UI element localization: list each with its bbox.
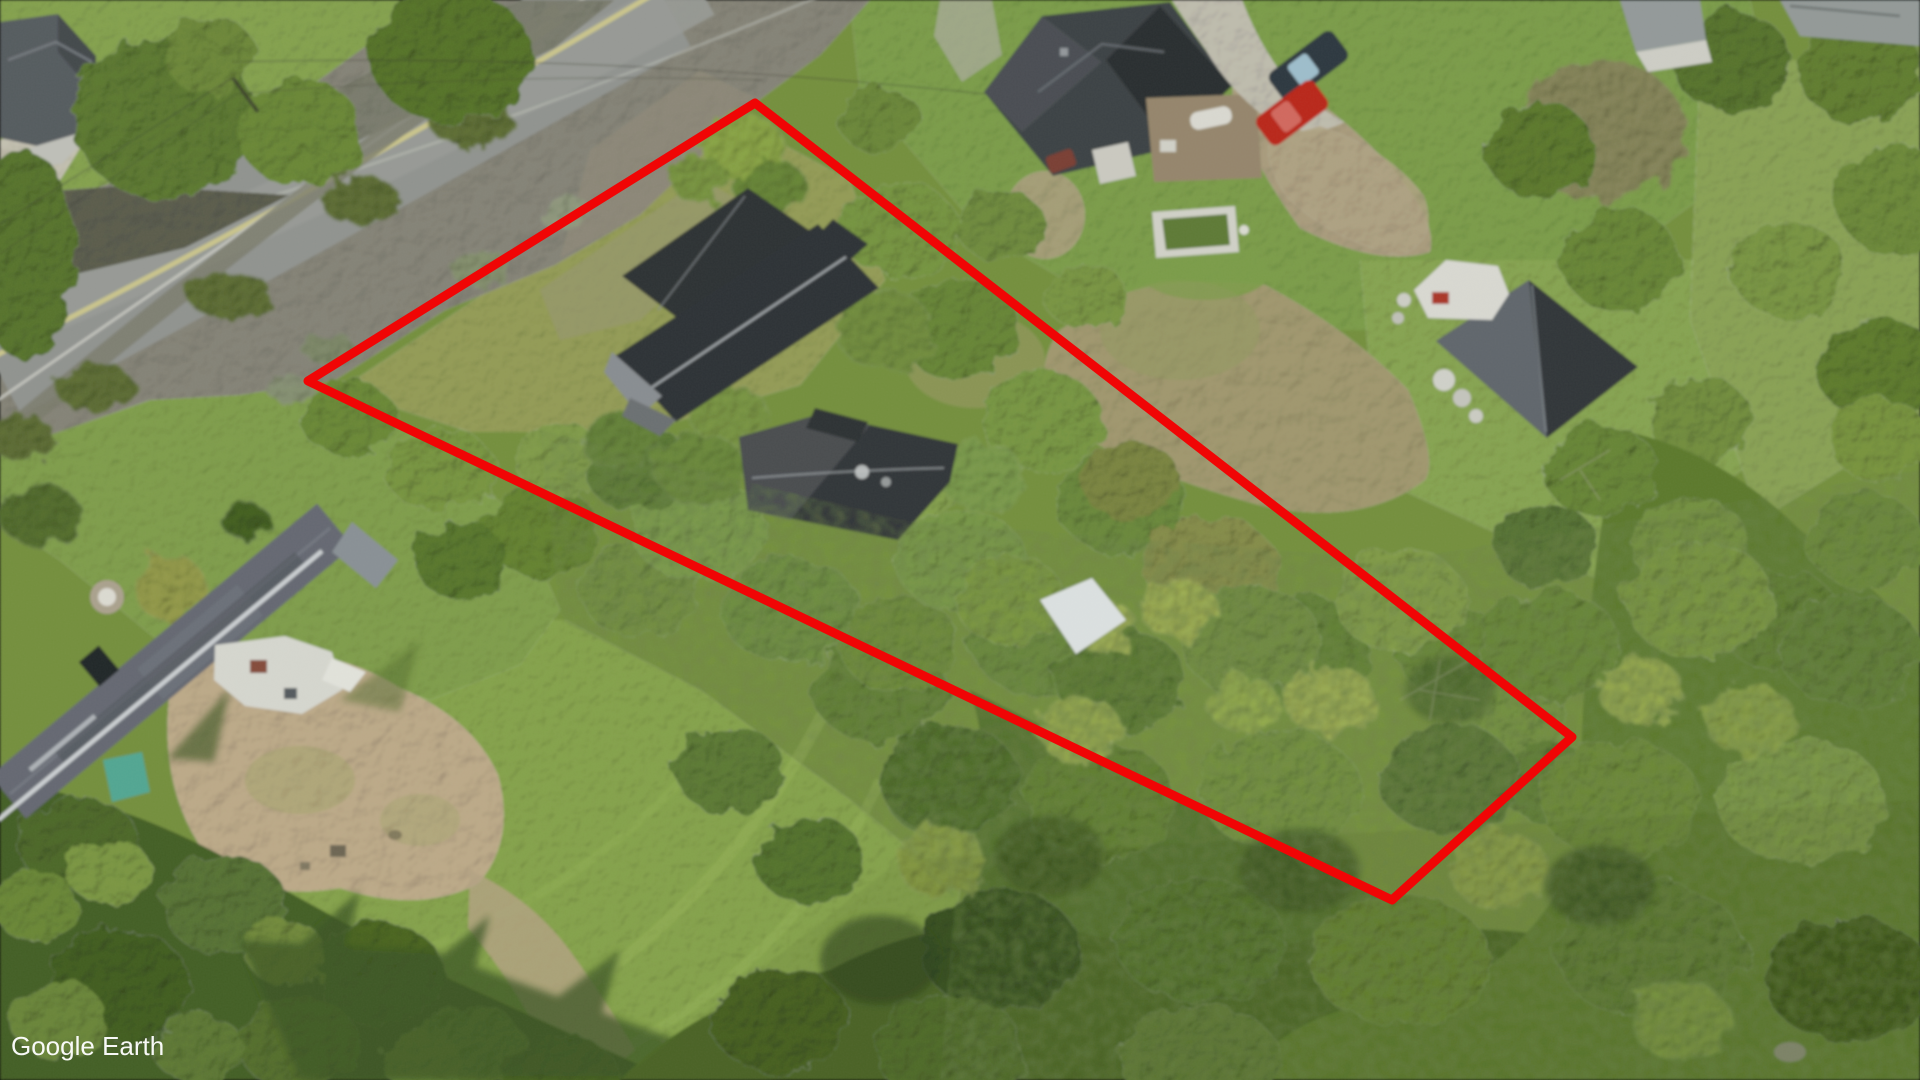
svg-text:Google Earth: Google Earth xyxy=(11,1031,164,1061)
